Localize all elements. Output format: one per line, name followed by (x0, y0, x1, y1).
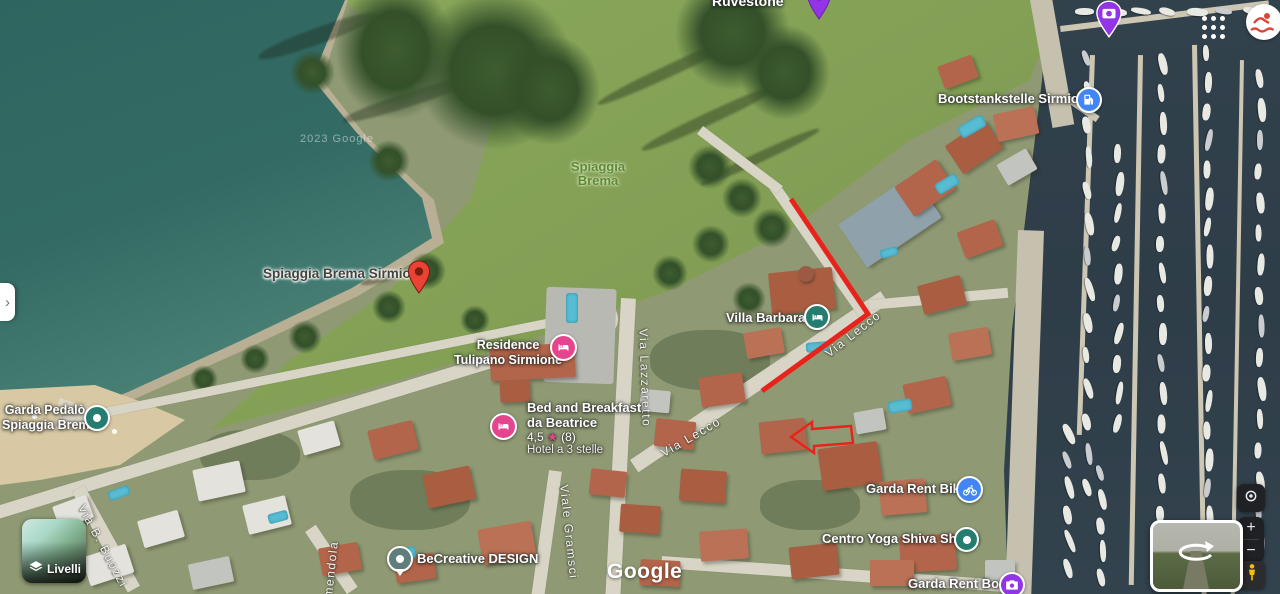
boat (1097, 488, 1109, 510)
boat (1157, 473, 1166, 494)
boat (1254, 163, 1262, 180)
building (619, 504, 661, 535)
boat (1113, 203, 1123, 224)
rotate-view-icon (1173, 539, 1217, 572)
boat (1159, 323, 1167, 345)
boat (1082, 312, 1094, 333)
boat (1095, 568, 1106, 587)
poi-label-garda-pedalo[interactable]: Garda Pedalò Spiaggia Brema (2, 403, 88, 433)
imagery-watermark: 2023 Google (300, 133, 374, 145)
boat (1083, 212, 1095, 236)
building (758, 418, 807, 455)
tree (368, 140, 410, 182)
rating-value: 4,5 (527, 430, 544, 444)
boat (1115, 381, 1125, 405)
boat (1158, 203, 1166, 223)
boat (1255, 192, 1265, 214)
tree (652, 255, 688, 291)
boat (1080, 49, 1091, 66)
boat (1158, 262, 1168, 284)
boat (1082, 347, 1090, 364)
tree-cluster (740, 25, 830, 120)
photo-pin-icon[interactable] (1094, 0, 1124, 43)
google-logo[interactable]: Google (607, 560, 682, 584)
side-panel-toggle[interactable]: › (0, 283, 15, 321)
tree (290, 50, 335, 95)
chevron-right-icon: › (5, 294, 10, 311)
boat (1082, 377, 1095, 399)
tree-cluster (500, 35, 600, 145)
boat (1084, 443, 1093, 466)
boat (1258, 314, 1265, 337)
boat (1095, 464, 1106, 481)
boat (1204, 187, 1214, 211)
boat (1256, 377, 1267, 402)
boat (1156, 236, 1164, 252)
boat (1203, 45, 1210, 61)
locate-icon (1243, 488, 1259, 509)
pegman-icon (1244, 563, 1260, 588)
poi-label-bnb-beatrice[interactable]: Bed and Breakfast da Beatrice 4,5 ★ (8) … (527, 400, 641, 456)
poi-label-villa-barbara[interactable]: Villa Barbara (726, 310, 805, 325)
boat (1157, 52, 1170, 75)
poi-label-ruvestone[interactable]: Ruvestone (712, 0, 784, 9)
boat (1081, 413, 1093, 431)
layers-label: Livelli (47, 562, 81, 576)
my-location-button[interactable] (1237, 484, 1265, 512)
boat (1081, 181, 1093, 200)
poi-label-becreative[interactable]: BeCreative DESIGN (417, 551, 538, 566)
boat (1255, 224, 1261, 241)
boat (1158, 6, 1175, 17)
hotel-icon[interactable] (490, 413, 517, 440)
map-canvas[interactable]: 2023 Google Via Lazzaretto Via Lecco Via… (0, 0, 1280, 594)
pedalo-poi-icon[interactable] (84, 405, 110, 431)
tree (722, 178, 762, 218)
star-icon: ★ (547, 430, 558, 444)
boat (1159, 441, 1170, 466)
boat (1156, 354, 1165, 373)
boat (1159, 382, 1168, 406)
building (699, 528, 749, 561)
boat (1202, 364, 1211, 382)
tree (288, 320, 322, 354)
boat (1257, 130, 1263, 150)
lodging-icon[interactable] (804, 304, 830, 330)
boat (1062, 558, 1075, 579)
becreative-pin-icon[interactable] (387, 546, 413, 572)
poi-label-garda-rent-boat[interactable]: Garda Rent Boat (908, 576, 1011, 591)
boat (1113, 263, 1123, 285)
boat (1075, 8, 1094, 15)
poi-label-bootstankstelle[interactable]: Bootstankstelle Sirmione (938, 91, 1094, 106)
layers-icon (29, 560, 43, 577)
building (698, 372, 746, 408)
boat (1084, 246, 1092, 266)
boat (1256, 409, 1263, 429)
boat (1113, 322, 1126, 345)
boat (1115, 172, 1126, 197)
poi-label-spiaggia-brema-sirmione[interactable]: Spiaggia Brema Sirmione (263, 266, 427, 281)
layers-control[interactable]: Livelli (22, 519, 86, 583)
boat (1061, 422, 1078, 445)
boat (1254, 442, 1262, 458)
swim-area-icon[interactable] (1246, 4, 1280, 40)
boat (1081, 478, 1093, 497)
boat (1156, 295, 1164, 313)
tree (692, 225, 730, 263)
boat (1157, 144, 1166, 163)
hotel-icon[interactable] (550, 334, 577, 361)
boat (1215, 7, 1233, 16)
swimming-pool (566, 293, 578, 323)
boat (1203, 276, 1213, 297)
boat (1257, 98, 1267, 123)
boat (1081, 116, 1092, 134)
boat (1112, 294, 1121, 312)
tree (240, 344, 270, 374)
boat (1061, 451, 1073, 470)
boat (1083, 277, 1097, 302)
review-count: (8) (561, 430, 576, 444)
boat (1095, 517, 1105, 535)
boat (1204, 129, 1214, 152)
boat (1157, 84, 1165, 103)
bike-rental-icon[interactable] (956, 476, 983, 503)
boat (1085, 146, 1093, 168)
boat (1202, 306, 1211, 323)
streetview-preview-thumbnail[interactable] (1150, 520, 1243, 592)
search-result-pin-icon[interactable] (407, 260, 431, 299)
poi-label-spiaggia-brema-park[interactable]: Spiaggia Brema (556, 160, 640, 188)
boat (1203, 160, 1210, 178)
boat (1159, 171, 1169, 196)
boat (1099, 540, 1106, 562)
boat (1063, 475, 1076, 499)
boat (1157, 414, 1165, 433)
boat (1063, 529, 1078, 554)
poi-category: Hotel a 3 stelle (527, 444, 641, 456)
poi-label-residence-tulipano[interactable]: Residence Tulipano Sirmione (450, 338, 566, 368)
building (788, 543, 839, 580)
boat (1201, 103, 1211, 121)
boat (1203, 217, 1213, 237)
tree (372, 290, 406, 324)
boat (1112, 413, 1124, 433)
boat (1205, 448, 1214, 471)
boat (1062, 505, 1073, 525)
building (589, 468, 628, 498)
boat (1207, 245, 1214, 269)
boat (1114, 144, 1122, 163)
building (499, 379, 530, 403)
boat (1256, 348, 1264, 367)
boat (1110, 235, 1121, 252)
boat (1131, 6, 1152, 15)
fuel-station-icon[interactable] (1076, 87, 1102, 113)
boat (1254, 287, 1264, 306)
boat-rental-icon[interactable] (999, 572, 1025, 594)
ruvestone-pin-icon[interactable] (806, 0, 832, 25)
boat (1203, 478, 1212, 498)
boat (1205, 333, 1212, 354)
building (679, 468, 727, 503)
villa-turret (798, 266, 814, 282)
yoga-poi-icon[interactable] (954, 527, 979, 552)
boat (1112, 355, 1122, 374)
grid-dots-icon (1202, 16, 1225, 39)
boat (1204, 390, 1213, 413)
boat (1203, 421, 1211, 439)
boat (1254, 69, 1264, 89)
boat (1257, 253, 1266, 275)
boat (1159, 112, 1167, 135)
boat (1205, 72, 1213, 93)
